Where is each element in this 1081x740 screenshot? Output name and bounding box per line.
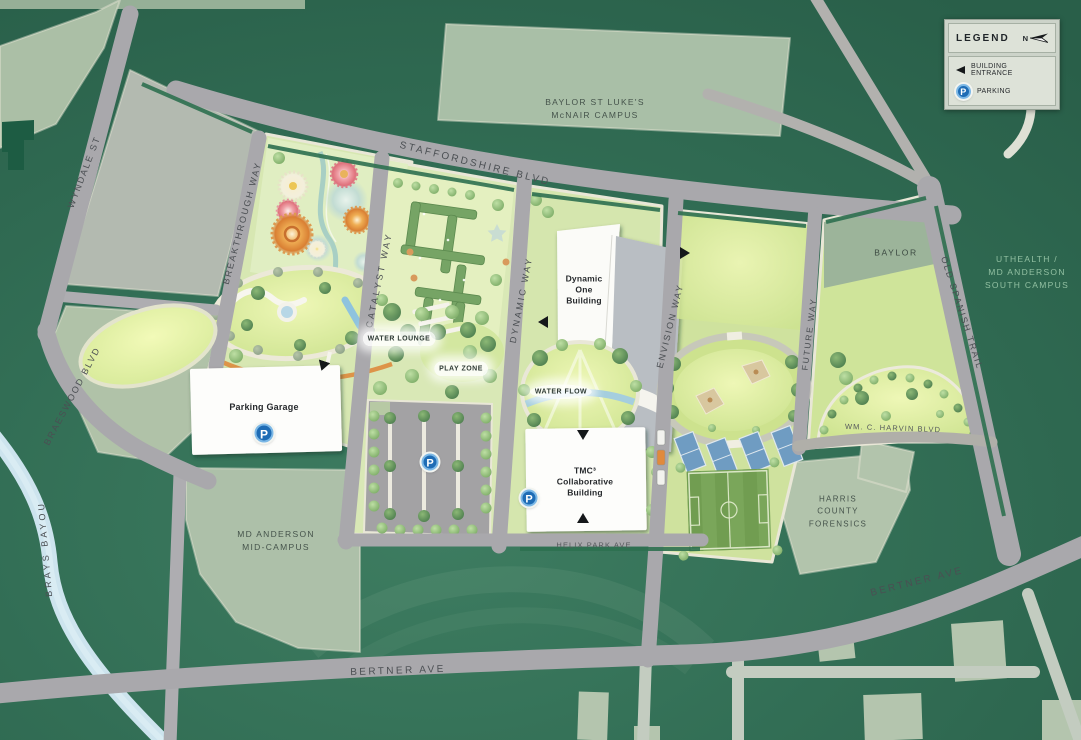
north-indicator: N: [1023, 33, 1048, 43]
hedge-garden: [372, 168, 514, 353]
feature-label-play-zone: PLAY ZONE: [434, 361, 488, 376]
legend-item-label: BUILDING ENTRANCE: [971, 63, 1048, 77]
map-artwork: [0, 0, 1081, 740]
legend-body: BUILDING ENTRANCE P PARKING: [948, 56, 1056, 106]
campus-map: STAFFORDSHIRE BLVD WYNDALE ST BRAESWOOD …: [0, 0, 1081, 740]
north-label: N: [1023, 34, 1028, 43]
legend-item-building-entrance: BUILDING ENTRANCE: [956, 63, 1048, 77]
feature-label-line: FLOW: [565, 388, 588, 395]
feature-label-line: PLAY: [439, 365, 459, 372]
parking-icon-garage: P: [255, 424, 274, 443]
parking-icon-surface-lot: P: [422, 454, 439, 471]
tmc3-building: [525, 427, 646, 532]
food-trucks: [657, 430, 665, 485]
legend: LEGEND N BUILDING ENTRANCE P PARKING: [944, 19, 1060, 110]
legend-item-parking: P PARKING: [956, 84, 1048, 99]
feature-label-line: WATER: [535, 388, 562, 395]
feature-label-line: WATER: [368, 335, 395, 342]
parking-icon-tmc3: P: [521, 490, 538, 507]
feature-label-line: LOUNGE: [397, 335, 430, 342]
building-entrance-icon: [956, 66, 965, 74]
legend-header: LEGEND N: [948, 23, 1056, 53]
parking-icon: P: [956, 84, 971, 99]
feature-label-water-lounge: WATER LOUNGE: [363, 331, 436, 346]
north-arrow-icon: [1030, 33, 1048, 43]
feature-label-line: ZONE: [461, 365, 482, 372]
legend-title: LEGEND: [956, 33, 1010, 44]
legend-item-label: PARKING: [977, 88, 1011, 95]
